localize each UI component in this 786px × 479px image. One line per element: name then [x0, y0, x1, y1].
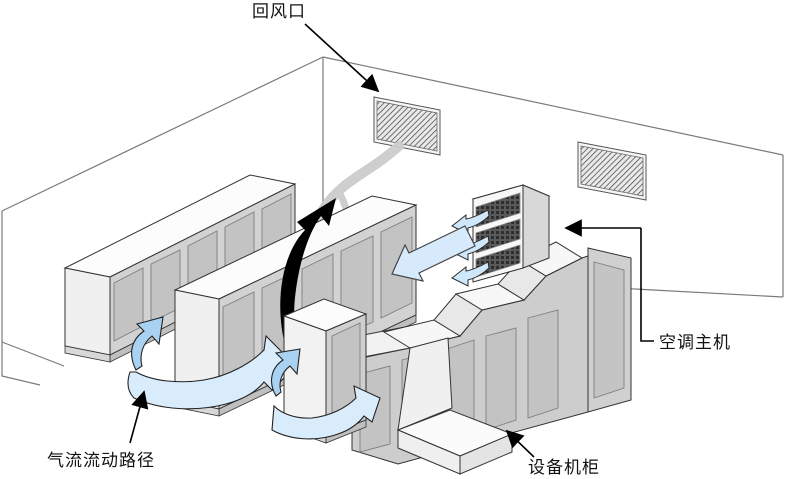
wall-vent-grille-2: [578, 142, 646, 200]
label-airflow-path: 气流流动路径: [47, 451, 155, 470]
label-return-air-vent: 回风口: [252, 2, 306, 21]
diagram-canvas: 回风口 空调主机 气流流动路径 设备机柜: [0, 0, 786, 479]
server-room-airflow-diagram: 回风口 空调主机 气流流动路径 设备机柜: [0, 0, 786, 479]
left-wall-bottom-edge: [2, 211, 40, 385]
floor-line-left: [2, 342, 64, 366]
cabinet-row-back-endcap: [65, 268, 110, 355]
leader-return-air-vent: [305, 24, 378, 91]
label-ac-main-unit: 空调主机: [659, 333, 731, 352]
ac-unit-side: [523, 185, 549, 268]
label-equipment-cabinet: 设备机柜: [528, 458, 600, 477]
leader-ac-unit-elbow: [641, 228, 654, 341]
return-air-vent-grille: [374, 97, 440, 155]
